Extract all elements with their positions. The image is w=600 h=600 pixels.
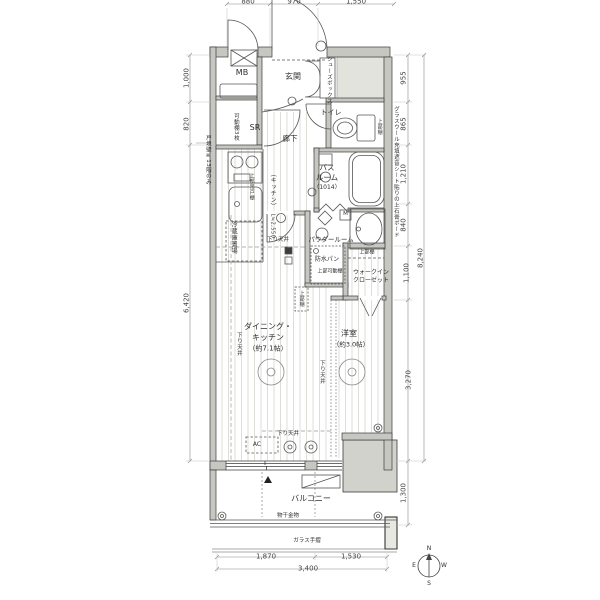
room-label-hallway: 廊下 — [283, 135, 298, 143]
balcony-end-post — [385, 517, 397, 549]
room-label-sr: SR — [250, 124, 261, 132]
label-shoes-box: シューズボックス — [325, 56, 331, 104]
room-label-wic-1: ウォークイン — [353, 270, 389, 276]
compass-s: S — [427, 581, 431, 587]
label-movable-shelf: 可動棚3枚 — [232, 113, 238, 141]
label-bedroom-size: （約3.0帖） — [333, 342, 369, 349]
room-label-toilet: トイレ — [321, 109, 342, 116]
floor-plan-page: MB 玄関 シューズボックス トイレ 上部棚 SR 可動棚3枚 廊下 バス ルー… — [0, 0, 600, 600]
room-label-wic-2: クローゼット — [353, 278, 389, 284]
dim-right-3: 840 — [400, 218, 407, 231]
label-ac: AC — [253, 442, 261, 448]
label-lowered-ceiling-top: 下り天井 — [267, 238, 289, 244]
label-upper-shelf-hall: 上部棚 — [298, 291, 303, 308]
room-label-dk-2: キッチン — [252, 334, 284, 342]
label-waterproof-pan: 防水パン — [315, 257, 339, 263]
room-label-dk-1: ダイニング・ — [244, 323, 292, 331]
room-label-powder: パウダールーム — [308, 237, 353, 244]
label-upper-shelf-toilet: 上部棚 — [376, 119, 381, 136]
dim-left-0: 1,000 — [183, 68, 190, 88]
label-kitchen: （キッチン） — [269, 171, 275, 210]
note-right-wall: グラスウール充填遮音シート貼りの上石膏ボード — [392, 106, 398, 238]
dim-left-2: 6,420 — [183, 293, 190, 313]
dim-top-1: 970 — [287, 0, 300, 6]
label-lowered-ceiling-bottom: 下り天井 — [277, 432, 299, 438]
dim-right-2: 1,210 — [400, 164, 407, 184]
mb-door — [228, 20, 258, 50]
room-label-mb: MB — [236, 69, 248, 77]
compass-e: E — [412, 563, 416, 569]
label-lowered-ceiling-mid: 下り天井 — [318, 360, 324, 384]
dim-bottom-0: 1,870 — [256, 553, 276, 560]
room-label-genkan: 玄関 — [285, 73, 301, 81]
label-glass-rail: ガラス手摺 — [293, 539, 320, 545]
label-upper-hanging-cabinet: 上部吊戸棚 — [248, 173, 253, 201]
room-label-bath-1: バス — [320, 164, 335, 172]
room-label-bedroom: 洋室 — [341, 330, 357, 338]
dim-right-4: 1,100 — [403, 263, 410, 283]
dim-right-1: 865 — [400, 117, 407, 130]
compass-n: N — [427, 546, 432, 552]
porch-area — [337, 57, 384, 102]
ground-line — [212, 549, 397, 552]
room-label-bath-2: ルーム — [316, 174, 338, 182]
dim-left-1: 820 — [183, 117, 190, 130]
label-meter: M — [343, 212, 348, 218]
label-upper-shelf-wic: 上部棚 — [359, 250, 374, 255]
note-left-wall: 戸境壁※13階のみ — [204, 135, 210, 186]
dim-top-0: 880 — [241, 0, 254, 6]
dim-right-5: 3,270 — [405, 370, 412, 390]
room-label-balcony: バルコニー — [291, 495, 331, 503]
dim-balcony-depth: 1,300 — [400, 483, 407, 503]
compass-w: W — [441, 563, 447, 569]
dim-right-0: 955 — [400, 71, 407, 84]
compass-icon — [418, 553, 440, 577]
label-laundry-hook: 物干金物 — [277, 514, 299, 520]
label-lowered-ceiling-left: 下り天井 — [235, 332, 241, 356]
entrance-door — [272, 0, 327, 50]
glass-railing — [210, 520, 397, 527]
label-kitchen-length: L≒2,550 — [269, 214, 274, 239]
label-upper-movable-shelf: 上部可動棚 — [317, 269, 342, 274]
dim-bottom-1: 1,530 — [341, 553, 361, 560]
label-bath-size: （1014） — [313, 185, 340, 191]
dim-bottom-total: 3,400 — [298, 565, 318, 572]
label-dk-size: （約7.1帖） — [248, 345, 287, 352]
dim-top-2: 1,550 — [346, 0, 366, 6]
dim-right-total: 8,240 — [417, 248, 424, 268]
label-fridge: 冷蔵庫置場 — [230, 222, 236, 255]
